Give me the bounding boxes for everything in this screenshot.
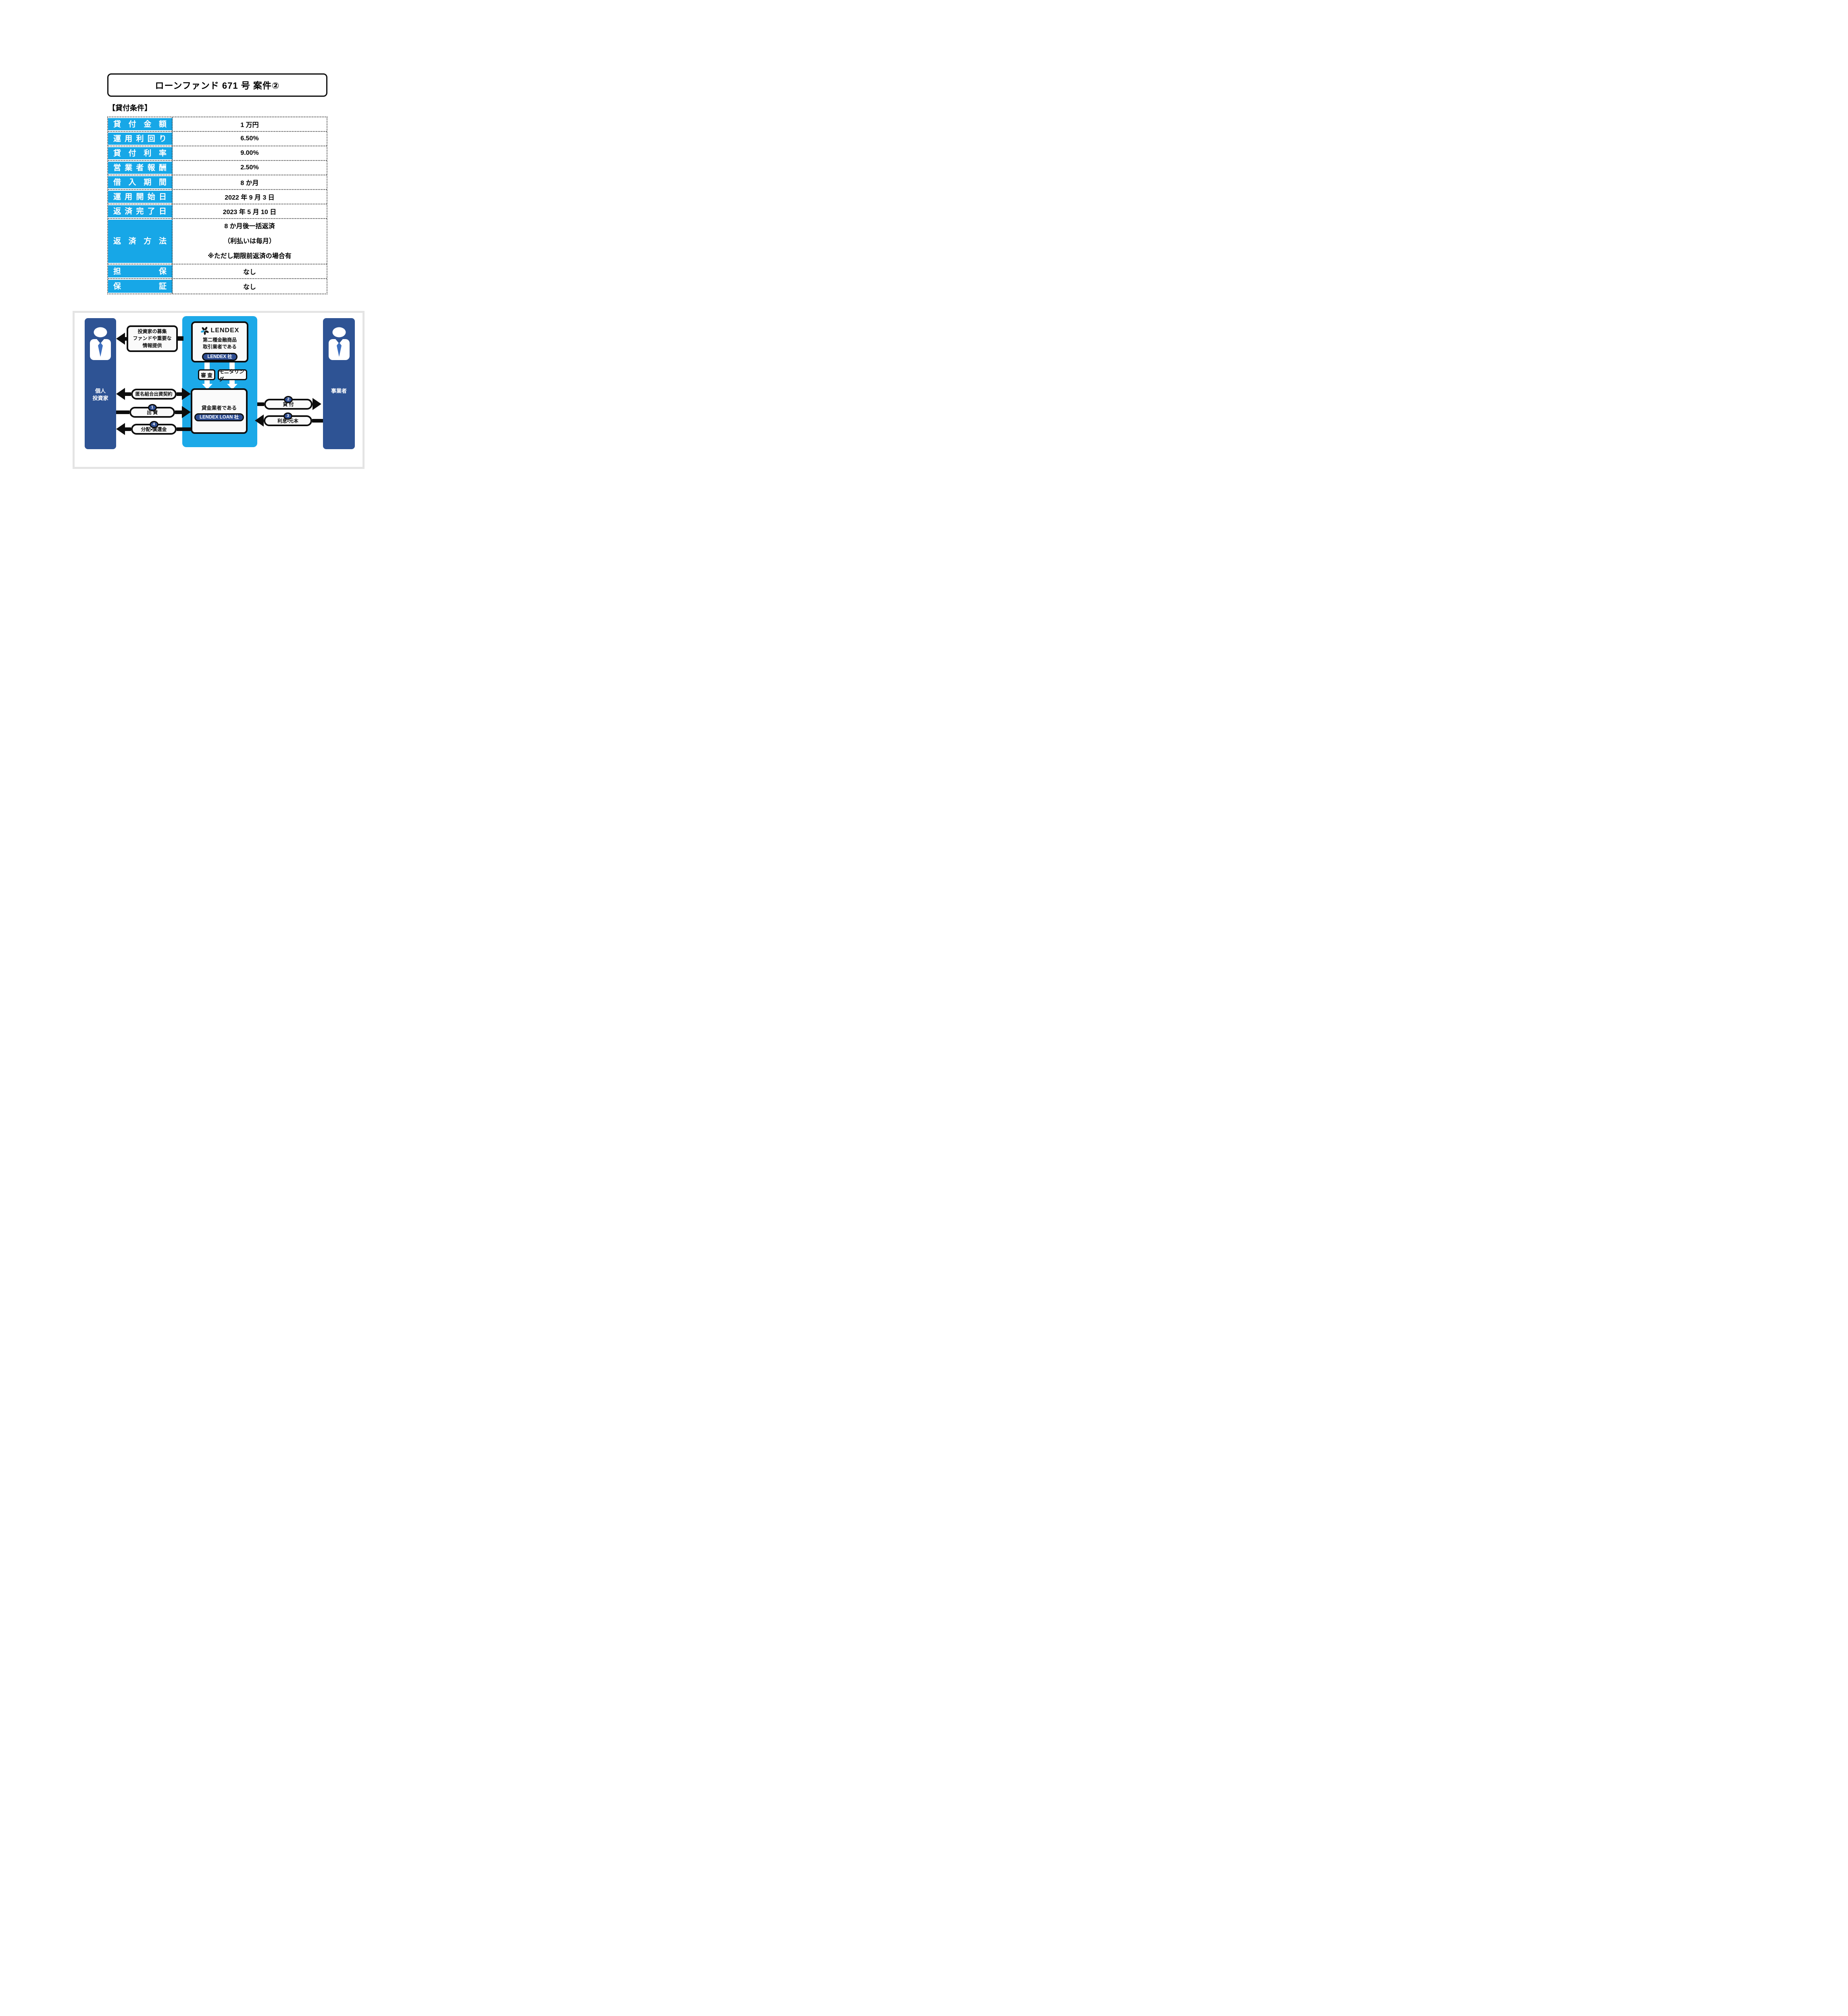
investment-pill: 1 出 資 (129, 407, 175, 418)
investor-label: 個人 投資家 (85, 387, 116, 402)
person-icon (326, 327, 352, 360)
loan-box: 貸金業者である LENDEX LOAN 社 (191, 388, 248, 434)
row-label-cell: 運用開始日 (108, 190, 173, 204)
investor-label-line: 個人 (85, 387, 116, 395)
row-label: 貸付金額 (113, 121, 167, 128)
right-arrowhead-icon (182, 388, 191, 400)
distribution-flow: 4 分配・償還金 (116, 423, 191, 435)
row-value: 2022 年 9 月 3 日 (173, 190, 327, 204)
step-number-badge: 4 (150, 421, 158, 428)
title-box: ローンファンド 671 号 案件② (107, 73, 327, 97)
section-heading: 【貸付条件】 (108, 102, 152, 113)
info-box-line: ファンドや重要な (133, 335, 171, 342)
arrow-bar (257, 402, 264, 406)
arrow-bar (116, 410, 129, 414)
row-label: 保証 (113, 283, 167, 290)
distribution-pill: 4 分配・償還金 (131, 424, 177, 435)
anonymous-contract-pill: 匿名組合出資契約 (131, 389, 177, 400)
table-row: 貸付利率 9.00% (108, 146, 327, 161)
lendex-box: LENDEX 第二種金融商品 取引業者である LENDEX 社 (191, 321, 248, 362)
left-arrowhead-icon (116, 388, 125, 400)
info-connector-bar (177, 336, 183, 341)
investment-flow: 1 出 資 (116, 406, 191, 418)
left-arrowhead-icon (116, 423, 125, 435)
row-label-cell: 担保 (108, 264, 173, 278)
table-row: 貸付金額 1 万円 (108, 117, 327, 132)
row-label: 返済完了日 (113, 208, 167, 215)
right-arrowhead-icon (313, 398, 321, 410)
interest-pill: 3 利息・元本 (264, 415, 312, 426)
loan-pill: 2 貸 付 (264, 399, 313, 410)
left-arrowhead-icon (255, 414, 264, 427)
interest-flow: 3 利息・元本 (255, 414, 323, 427)
table-row: 運用開始日 2022 年 9 月 3 日 (108, 190, 327, 204)
row-value-line: （利払いは毎月） (224, 234, 275, 249)
row-value: なし (173, 279, 327, 294)
row-label-cell: 運用利回り (108, 132, 173, 146)
row-value-line: 8 か月後一括返済 (224, 219, 275, 234)
investor-column: 個人 投資家 (85, 318, 116, 449)
person-icon (88, 327, 113, 360)
row-label-cell: 貸付金額 (108, 117, 173, 131)
step-number-badge: 2 (284, 396, 293, 403)
table-row: 運用利回り 6.50% (108, 132, 327, 146)
row-label-cell: 保証 (108, 279, 173, 294)
info-box-line: 情報提供 (142, 342, 162, 349)
step-number-badge: 3 (283, 412, 292, 420)
row-value: 8 か月 (173, 175, 327, 189)
row-label: 担保 (113, 268, 167, 275)
row-label: 運用開始日 (113, 193, 167, 201)
info-box-line: 投資家の募集 (138, 328, 167, 335)
arrow-bar (177, 427, 191, 431)
lendex-badge: LENDEX 社 (202, 353, 237, 361)
row-value: 8 か月後一括返済 （利払いは毎月） ※ただし期限前返済の場合有 (173, 219, 327, 264)
arrow-bar (125, 427, 131, 431)
row-value: 9.00% (173, 146, 327, 160)
table-row: 借入期間 8 か月 (108, 175, 327, 190)
conditions-table: 貸付金額 1 万円 運用利回り 6.50% 貸付利率 9.00% 営業者報酬 2… (107, 117, 327, 294)
row-label: 運用利回り (113, 135, 167, 143)
row-value: 2.50% (173, 161, 327, 175)
table-row: 返済完了日 2023 年 5 月 10 日 (108, 204, 327, 219)
left-arrowhead-icon (116, 333, 125, 345)
anonymous-contract-flow: 匿名組合出資契約 (116, 388, 191, 400)
lendex-description-line: 第二種金融商品 (193, 337, 247, 344)
row-value: 2023 年 5 月 10 日 (173, 204, 327, 218)
row-label: 貸付利率 (113, 150, 167, 157)
business-label: 事業者 (323, 387, 355, 395)
scheme-diagram: 個人 投資家 事業者 (73, 311, 365, 469)
row-value: 6.50% (173, 132, 327, 146)
lendex-logo-text: LENDEX (211, 327, 240, 334)
loan-description: 貸金業者である (192, 404, 246, 411)
arrow-bar (175, 410, 182, 414)
loan-badge: LENDEX LOAN 社 (194, 413, 244, 421)
right-arrowhead-icon (182, 406, 191, 418)
row-value: なし (173, 264, 327, 278)
row-label-cell: 返済完了日 (108, 204, 173, 218)
row-label: 返済方法 (113, 237, 167, 245)
table-row: 返済方法 8 か月後一括返済 （利払いは毎月） ※ただし期限前返済の場合有 (108, 219, 327, 264)
row-label: 営業者報酬 (113, 164, 167, 172)
loan-flow: 2 貸 付 (257, 398, 323, 410)
step-number-badge: 1 (148, 404, 157, 411)
row-label-cell: 返済方法 (108, 219, 173, 264)
arrow-bar (312, 419, 323, 423)
info-arrow (116, 333, 127, 345)
document-page: ローンファンド 671 号 案件② 【貸付条件】 貸付金額 1 万円 運用利回り… (0, 0, 462, 566)
table-row: 担保 なし (108, 264, 327, 279)
lendex-logo-mark-icon (200, 326, 209, 335)
row-label: 借入期間 (113, 179, 167, 186)
page-title: ローンファンド 671 号 案件② (155, 79, 280, 92)
lendex-description-line: 取引業者である (193, 344, 247, 350)
row-label-cell: 借入期間 (108, 175, 173, 189)
row-value: 1 万円 (173, 117, 327, 131)
table-row: 保証 なし (108, 279, 327, 294)
row-label-cell: 貸付利率 (108, 146, 173, 160)
row-label-cell: 営業者報酬 (108, 161, 173, 175)
business-column: 事業者 (323, 318, 355, 449)
lendex-description: 第二種金融商品 取引業者である (193, 337, 247, 351)
screening-label: 審 査 (198, 369, 215, 380)
monitoring-label: モニタリング (218, 369, 247, 380)
row-value-line: ※ただし期限前返済の場合有 (208, 249, 292, 264)
arrow-bar (177, 392, 182, 396)
lendex-logo: LENDEX (193, 326, 247, 335)
arrow-bar (125, 392, 131, 396)
info-box: 投資家の募集 ファンドや重要な 情報提供 (127, 325, 178, 352)
investor-label-line: 投資家 (85, 395, 116, 402)
table-row: 営業者報酬 2.50% (108, 161, 327, 175)
